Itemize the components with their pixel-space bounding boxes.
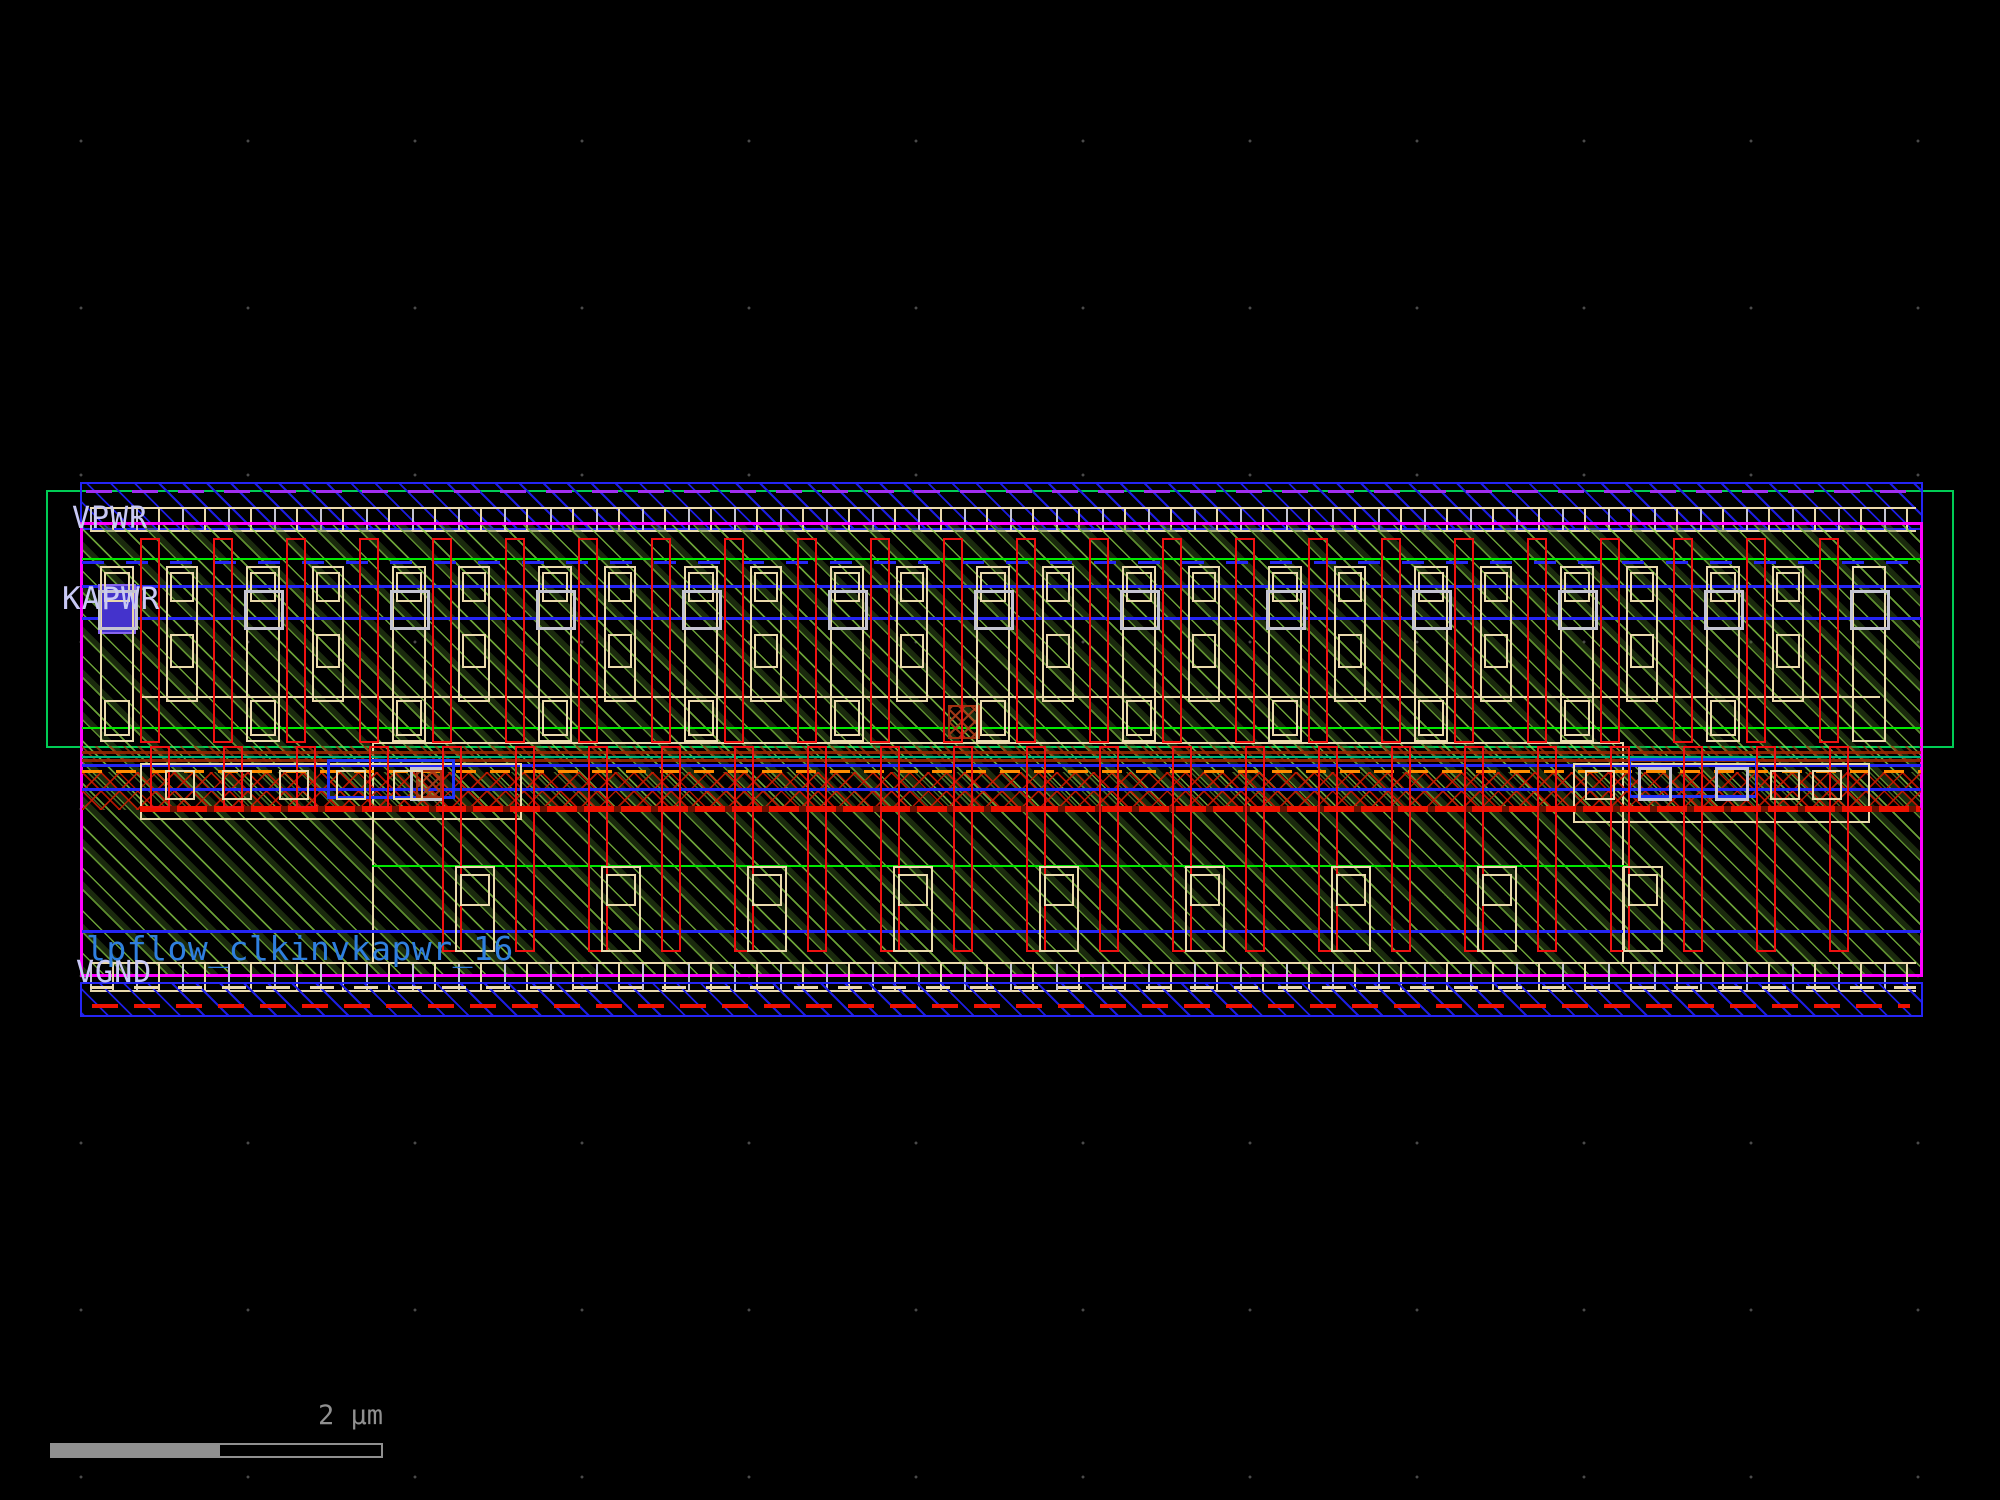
tap-square xyxy=(1812,770,1842,800)
poly-finger-upper xyxy=(505,538,525,743)
diff-edge-top xyxy=(82,558,1921,560)
licon-box xyxy=(754,572,778,602)
licon-box xyxy=(1484,572,1508,602)
licon-box xyxy=(1046,572,1070,602)
poly-finger-stub xyxy=(369,746,389,808)
tap-square xyxy=(393,770,423,800)
licon-box-lower xyxy=(606,874,636,906)
layout-viewport[interactable]: VPWR KAPWR VGND lpflow_clkinvkapwr_16 2 … xyxy=(0,0,2000,1500)
licon-box-lower xyxy=(898,874,928,906)
poly-finger-upper xyxy=(1016,538,1036,743)
met1-dashes-upper xyxy=(82,561,1921,564)
licon-box xyxy=(1630,572,1654,602)
licon-box xyxy=(1710,700,1736,736)
licon-box xyxy=(1484,634,1508,668)
li-square xyxy=(1266,590,1306,630)
licon-box xyxy=(900,634,924,668)
poly-finger-upper xyxy=(1673,538,1693,743)
li-square xyxy=(1850,590,1890,630)
licon-box-lower xyxy=(1336,874,1366,906)
licon-box xyxy=(1630,634,1654,668)
scalebar-outline xyxy=(218,1443,383,1458)
tap-square xyxy=(1770,770,1800,800)
poly-finger-upper xyxy=(1600,538,1620,743)
poly-finger-upper xyxy=(140,538,160,743)
poly-finger-lower xyxy=(1537,746,1557,952)
licon-box xyxy=(1776,572,1800,602)
licon-box xyxy=(608,634,632,668)
licon-box xyxy=(170,634,194,668)
poly-finger-lower xyxy=(1245,746,1265,952)
licon-box xyxy=(834,700,860,736)
licon-box-lower xyxy=(1190,874,1220,906)
li-square xyxy=(828,590,868,630)
tap-square xyxy=(165,770,195,800)
poly-finger-upper xyxy=(1162,538,1182,743)
licon-box xyxy=(1272,700,1298,736)
licon-box xyxy=(250,700,276,736)
met2-dashes-top xyxy=(86,490,1919,493)
diff-edge-lower xyxy=(372,865,1630,867)
li-square xyxy=(974,590,1014,630)
li-square xyxy=(1704,590,1744,630)
poly-finger-upper xyxy=(797,538,817,743)
licon-box xyxy=(316,634,340,668)
poly-finger-lower xyxy=(1683,746,1703,952)
licon-box xyxy=(462,572,486,602)
poly-finger-lower xyxy=(1099,746,1119,952)
poly-finger-lower xyxy=(953,746,973,952)
tap-dashes-bottom xyxy=(92,1004,1910,1008)
licon-box xyxy=(1338,572,1362,602)
poly-finger-upper xyxy=(578,538,598,743)
tap-square xyxy=(279,770,309,800)
poly-finger-upper xyxy=(870,538,890,743)
label-cell-name: lpflow_clkinvkapwr_16 xyxy=(86,932,514,965)
poly-finger-upper xyxy=(1308,538,1328,743)
licon-box xyxy=(104,700,130,736)
poly-finger-upper xyxy=(432,538,452,743)
licon-box-lower xyxy=(460,874,490,906)
licon-box xyxy=(1418,700,1444,736)
poly-finger-upper xyxy=(1381,538,1401,743)
poly-finger-upper xyxy=(1819,538,1839,743)
licon-box xyxy=(608,572,632,602)
poly-finger-upper xyxy=(1527,538,1547,743)
tap-square xyxy=(1585,770,1615,800)
label-vpwr: VPWR xyxy=(72,504,148,534)
poly-finger-upper xyxy=(359,538,379,743)
li-square xyxy=(536,590,576,630)
scalebar xyxy=(50,1443,383,1458)
poly-finger-lower xyxy=(807,746,827,952)
poly-finger-upper xyxy=(1089,538,1109,743)
licon-box xyxy=(1192,634,1216,668)
poly-finger-upper xyxy=(286,538,306,743)
li-square xyxy=(682,590,722,630)
licon-box xyxy=(1046,634,1070,668)
poly-finger-upper xyxy=(651,538,671,743)
licon-box xyxy=(980,700,1006,736)
licon-box xyxy=(462,634,486,668)
poly-finger-lower xyxy=(661,746,681,952)
licon-box-lower xyxy=(1482,874,1512,906)
poly-finger-upper xyxy=(724,538,744,743)
li-dashes-bottom xyxy=(90,986,1916,989)
licon-box xyxy=(754,634,778,668)
scalebar-filled xyxy=(50,1443,218,1458)
poly-finger-upper xyxy=(1235,538,1255,743)
poly-finger-upper xyxy=(213,538,233,743)
licon-box-lower xyxy=(752,874,782,906)
licon-box-lower xyxy=(1044,874,1074,906)
li-square xyxy=(1120,590,1160,630)
poly-finger-upper xyxy=(1454,538,1474,743)
li-square xyxy=(244,590,284,630)
poly-finger-upper xyxy=(943,538,963,743)
tap-square xyxy=(222,770,252,800)
licon-box xyxy=(900,572,924,602)
poly-finger-upper xyxy=(1746,538,1766,743)
li-square xyxy=(1412,590,1452,630)
li-square-right xyxy=(1715,767,1749,801)
licon-box xyxy=(688,700,714,736)
scalebar-label: 2 µm xyxy=(253,1400,383,1431)
tap-square xyxy=(336,770,366,800)
li-square xyxy=(1558,590,1598,630)
label-kapwr: KAPWR xyxy=(62,584,160,615)
li-square xyxy=(390,590,430,630)
licon-box xyxy=(396,700,422,736)
poly-finger-lower xyxy=(1391,746,1411,952)
licon-box xyxy=(1564,700,1590,736)
poly-finger-lower xyxy=(515,746,535,952)
licon-box xyxy=(542,700,568,736)
li-square-right xyxy=(1638,767,1672,801)
licon-box xyxy=(1776,634,1800,668)
licon-box xyxy=(316,572,340,602)
licon-box xyxy=(1192,572,1216,602)
licon-box-lower xyxy=(1628,874,1658,906)
licon-box xyxy=(170,572,194,602)
licon-box xyxy=(1338,634,1362,668)
licon-box xyxy=(1126,700,1152,736)
